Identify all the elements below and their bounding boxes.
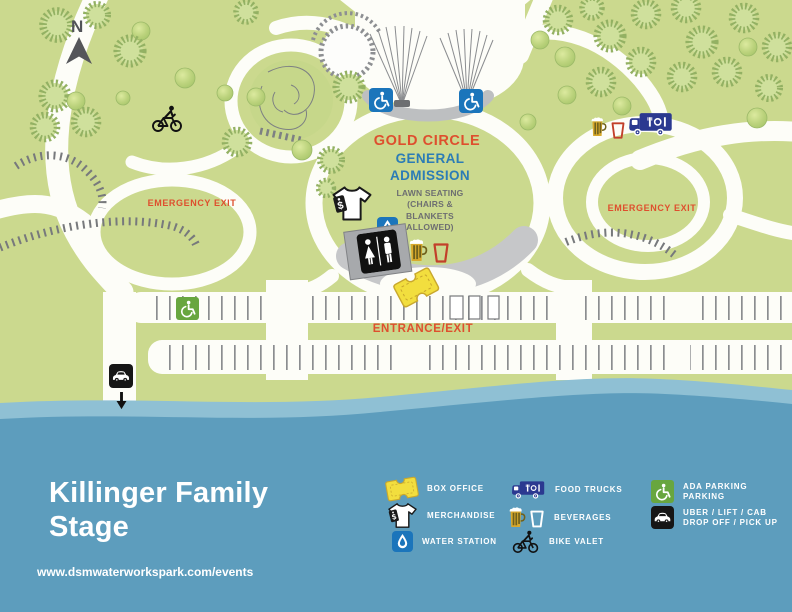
car-icon <box>651 506 674 529</box>
tree-cluster <box>758 77 780 99</box>
tshirt-icon <box>387 502 418 529</box>
tree-cluster <box>732 6 756 30</box>
food-truck-icon <box>511 479 546 501</box>
bike-icon <box>511 530 540 554</box>
legend-bike-valet: BIKE VALET <box>511 530 604 554</box>
tree <box>555 47 575 67</box>
ada-access-map-icon <box>459 89 483 113</box>
emergency-exit-right-label: EMERGENCY EXIT <box>608 203 697 213</box>
tree <box>747 108 767 128</box>
legend-label: BOX OFFICE <box>427 484 484 494</box>
tree-cluster <box>765 35 789 59</box>
tree <box>531 31 549 49</box>
legend-label: MERCHANDISE <box>427 511 495 521</box>
tree <box>116 91 130 105</box>
legend-label-2line: ADA PARKING PARKING <box>683 482 747 502</box>
tree-cluster <box>42 83 68 109</box>
tree-cluster <box>589 70 613 94</box>
tree-cluster <box>715 60 739 84</box>
legend-merchandise: MERCHANDISE <box>387 502 495 529</box>
legend-label: BEVERAGES <box>554 513 611 523</box>
tree-cluster <box>117 38 143 64</box>
tree-cluster <box>597 23 623 49</box>
page-title-line1: Killinger Family <box>49 476 268 510</box>
legend-label-line2: DROP OFF / PICK UP <box>683 518 778 528</box>
lawn-seating-label: LAWN SEATING (CHAIRS & BLANKETS ALLOWED) <box>382 188 478 234</box>
gold-circle-label: GOLD CIRCLE <box>374 133 481 149</box>
tree <box>247 88 265 106</box>
ada-parking-map-icon <box>176 297 199 320</box>
tree-cluster <box>689 29 715 55</box>
legend-food-trucks: FOOD TRUCKS <box>511 479 622 501</box>
tree <box>175 68 195 88</box>
events-url: www.dsmwaterworkspark.com/events <box>37 565 253 579</box>
legend-water-station: WATER STATION <box>392 531 497 552</box>
page-title: Killinger Family Stage <box>49 476 268 544</box>
tree-cluster <box>320 149 342 171</box>
tree-cluster <box>674 0 698 20</box>
tree <box>739 38 757 56</box>
legend-ada-parking: ADA PARKING PARKING <box>651 480 747 503</box>
ticket-icon <box>384 475 419 502</box>
ada-access-map-icon <box>369 88 393 112</box>
tree-cluster <box>225 130 249 154</box>
legend-beverages: BEVERAGES <box>508 505 611 530</box>
compass-north-label: N <box>71 17 84 37</box>
legend-label: FOOD TRUCKS <box>555 485 622 495</box>
legend-label: BIKE VALET <box>549 537 604 547</box>
legend-label: WATER STATION <box>422 537 497 547</box>
legend-label-2line: UBER / LIFT / CAB DROP OFF / PICK UP <box>683 508 778 528</box>
legend-rideshare: UBER / LIFT / CAB DROP OFF / PICK UP <box>651 506 778 529</box>
tree <box>520 114 536 130</box>
legend-box-office: BOX OFFICE <box>386 478 484 500</box>
tree-cluster <box>318 180 334 196</box>
legend-label-line1: UBER / LIFT / CAB <box>683 508 778 518</box>
tree <box>217 85 233 101</box>
rideshare-map-icon <box>109 364 133 388</box>
tree-cluster <box>43 11 71 39</box>
tree-cluster <box>33 115 57 139</box>
page-title-line2: Stage <box>49 510 268 544</box>
tree-cluster <box>546 8 570 32</box>
general-admission-label: GENERAL ADMISSION <box>385 151 475 185</box>
tree <box>132 22 150 40</box>
emergency-exit-left-label: EMERGENCY EXIT <box>148 198 237 208</box>
legend-label-line1: ADA PARKING <box>683 482 747 492</box>
tree-cluster <box>670 65 694 89</box>
beverages-icon <box>508 505 545 530</box>
tree-cluster <box>629 50 653 74</box>
water-drop-icon <box>392 531 413 552</box>
venue-map: $ <box>0 0 792 612</box>
tree-cluster <box>86 4 108 26</box>
tree <box>292 140 312 160</box>
legend-label-line2: PARKING <box>683 492 747 502</box>
entrance-exit-label: ENTRANCE/EXIT <box>373 323 473 335</box>
tree-cluster <box>336 74 362 100</box>
tree-cluster <box>236 2 256 22</box>
tree-cluster <box>74 110 98 134</box>
tree <box>558 86 576 104</box>
ada-parking-icon <box>651 480 674 503</box>
tree <box>613 97 631 115</box>
tree-cluster <box>634 2 658 26</box>
